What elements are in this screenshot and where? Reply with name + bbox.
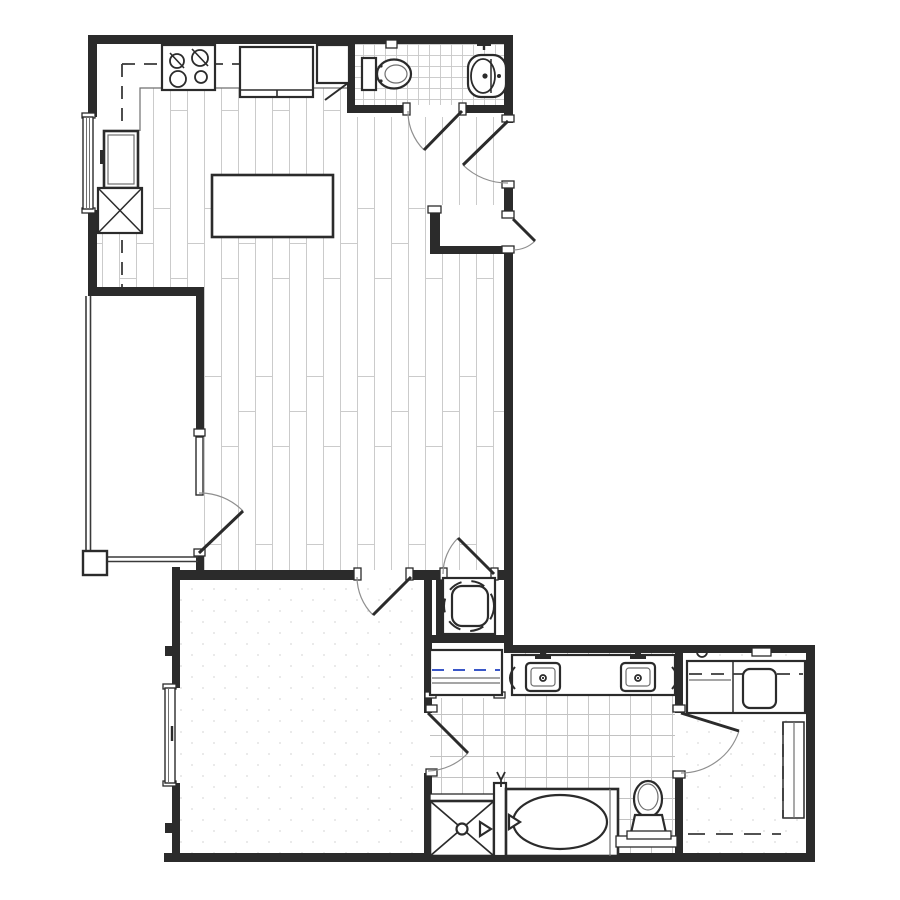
wall-entry-niche-horizontal — [430, 246, 504, 254]
faucet-icon — [535, 655, 551, 659]
cabinet-handle — [100, 150, 104, 164]
tub-deck-post — [494, 783, 506, 856]
wall-powder-bottom-right — [461, 105, 504, 113]
jamb — [673, 705, 685, 712]
floor-plan-page — [0, 0, 900, 900]
linen-closet-fixtures — [430, 650, 502, 695]
jamb — [673, 771, 685, 778]
window-frame — [165, 688, 175, 783]
wall-right-lower — [806, 645, 815, 862]
wall-nub-bedroom-upper — [165, 646, 172, 656]
kitchen-island — [212, 175, 333, 237]
carpet-floor-bedroom — [180, 580, 422, 853]
sink-fitting — [497, 74, 501, 78]
door-sidelite-panel — [196, 437, 203, 495]
mechanical-chase-icon — [98, 188, 142, 233]
jamb — [194, 429, 205, 436]
balcony-post — [83, 551, 107, 575]
sink-drain-dot — [637, 677, 639, 679]
jamb — [403, 103, 410, 115]
range-body — [162, 45, 215, 90]
laundry-fixtures — [443, 578, 495, 634]
wall-left-upper — [88, 44, 97, 117]
entry-niche-floor — [438, 205, 504, 246]
wall-top — [88, 35, 513, 44]
jamb — [502, 115, 514, 122]
bedroom-window — [163, 684, 176, 786]
seat-hinge — [379, 79, 382, 82]
sink-drain — [482, 73, 487, 78]
toilet-base — [627, 831, 671, 839]
toilet-icon — [362, 58, 411, 90]
jamb — [426, 705, 437, 712]
refrigerator-icon — [240, 47, 313, 97]
faucet-icon — [630, 655, 646, 659]
toilet-bowl — [377, 60, 411, 89]
washer-dryer-icon — [443, 578, 495, 634]
wall-nub-bedroom-lower — [165, 823, 172, 833]
jamb — [502, 246, 514, 253]
shower-drain — [457, 824, 468, 835]
jamb — [502, 181, 514, 188]
double-vanity — [510, 648, 677, 695]
jamb — [428, 206, 441, 213]
kitchen-window — [82, 113, 95, 213]
seat-hinge — [379, 64, 382, 67]
wall-left-mid — [88, 210, 97, 289]
shower-icon — [430, 794, 494, 856]
wall-balcony-living-upper — [196, 296, 204, 437]
floor-plan — [0, 0, 900, 900]
wall-bedroom-left-upper — [172, 567, 180, 688]
closet-seat — [743, 669, 776, 708]
toilet-tank — [631, 815, 666, 833]
jamb — [502, 211, 514, 218]
range-icon — [162, 45, 215, 90]
washer-drum — [452, 586, 488, 626]
wall-switch-plate — [752, 648, 771, 656]
wall-bedroom-top — [172, 570, 356, 580]
paper-holder-icon — [386, 40, 397, 48]
wall-powder-bottom-left — [347, 105, 409, 113]
sink-drain-dot — [542, 677, 544, 679]
tall-cabinet-body — [104, 131, 138, 188]
wall-right-main — [504, 248, 513, 653]
tall-cabinet — [100, 131, 138, 188]
cabinet-body — [317, 45, 349, 83]
toilet-tank — [362, 58, 376, 90]
linen-cabinet — [430, 650, 502, 695]
tub-basin — [513, 795, 607, 849]
wall-bedroom-left-lower — [172, 783, 180, 862]
wall-laundry-bottom — [430, 635, 504, 643]
wall-balcony-top — [88, 287, 204, 296]
window-frame — [83, 117, 93, 209]
